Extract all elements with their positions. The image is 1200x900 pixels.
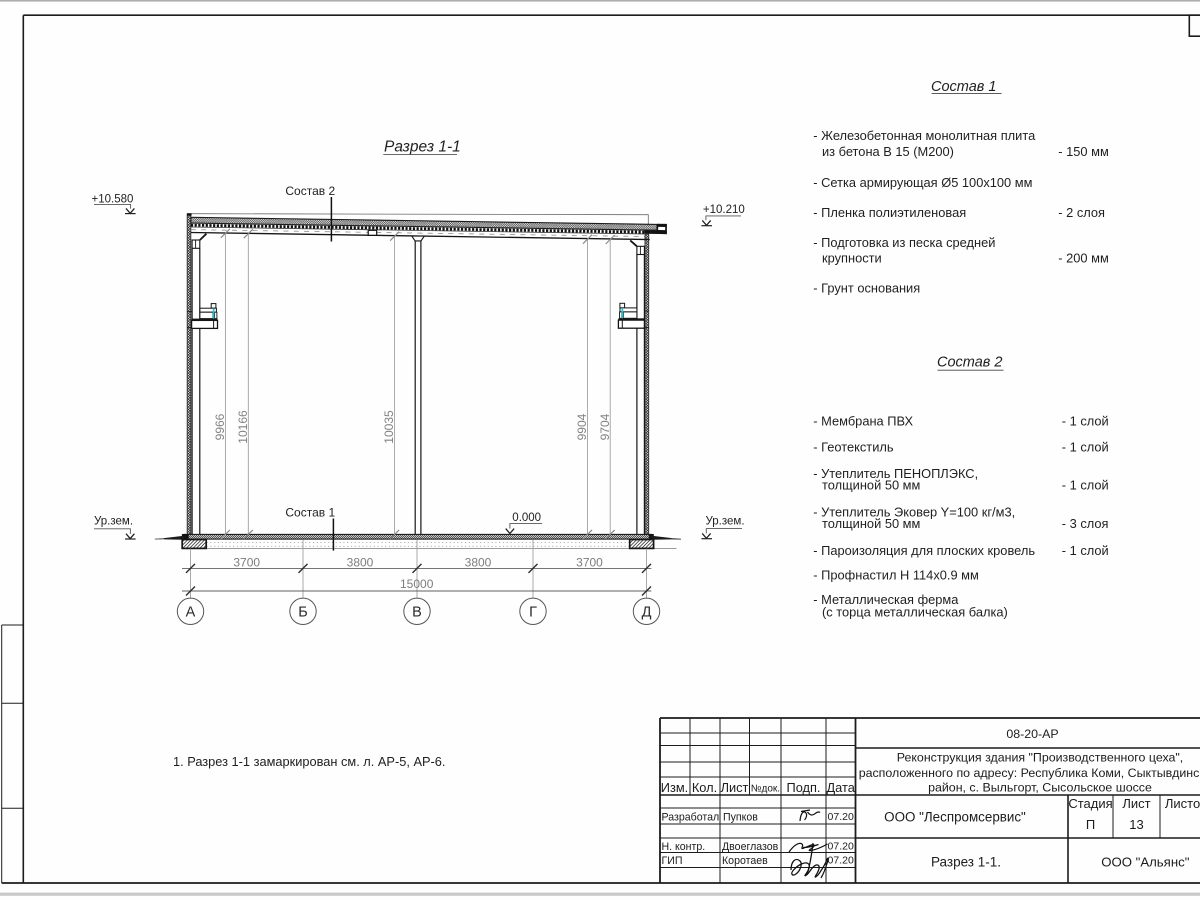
svg-text:- 1 слой: - 1 слой [1062,440,1109,455]
svg-text:3800: 3800 [347,555,374,569]
svg-text:- Подготовка из песка средней: - Подготовка из песка средней [813,235,995,250]
svg-text:Дата: Дата [827,780,856,795]
svg-text:Состав 2: Состав 2 [285,184,335,198]
svg-text:- Сетка армирующая Ø5 100х100: - Сетка армирующая Ø5 100х100 мм [813,175,1032,190]
svg-text:- 2 слоя: - 2 слоя [1058,205,1105,220]
svg-text:- Геотекстиль: - Геотекстиль [813,440,894,455]
svg-text:расположенного по адресу: Респ: расположенного по адресу: Республика Ком… [859,766,1200,780]
svg-text:- 150 мм: - 150 мм [1058,144,1109,159]
svg-text:10166: 10166 [236,410,250,444]
svg-text:- 1 слой: - 1 слой [1062,477,1109,492]
svg-text:9966: 9966 [213,413,227,440]
svg-text:+10.580: +10.580 [92,193,134,205]
svg-text:ООО "Альянс": ООО "Альянс" [1101,854,1189,869]
svg-text:П: П [1086,817,1095,832]
svg-text:ГИП: ГИП [662,855,683,867]
svg-text:Состав 1: Состав 1 [285,505,335,519]
svg-text:Разрез 1-1: Разрез 1-1 [384,139,461,156]
svg-text:- Пленка полиэтиленовая: - Пленка полиэтиленовая [813,205,966,220]
svg-text:Лист: Лист [1122,796,1150,811]
svg-text:Г: Г [529,604,537,620]
svg-text:Б: Б [298,604,308,620]
svg-text:А: А [186,604,196,620]
svg-text:(с торца металлическая балка): (с торца металлическая балка) [822,605,1008,620]
svg-text:Реконструкция здания "Производ: Реконструкция здания "Производственного … [897,751,1183,765]
svg-text:- Железобетонная монолитная п: - Железобетонная монолитная плита [813,128,1036,143]
svg-text:07.20: 07.20 [828,811,854,823]
svg-text:Состав 2: Состав 2 [937,355,1002,371]
svg-text:ООО "Леспромсервис": ООО "Леспромсервис" [884,810,1026,825]
svg-text:Лист: Лист [721,780,749,795]
svg-text:3700: 3700 [233,555,260,569]
svg-text:В: В [412,604,422,620]
svg-text:9704: 9704 [598,413,612,440]
svg-text:из бетона В 15 (М200): из бетона В 15 (М200) [822,144,954,159]
svg-text:1. Разрез 1-1 замаркирован см.: 1. Разрез 1-1 замаркирован см. л. АР-5, … [173,754,445,769]
svg-text:- Профнастил Н 114х0.9 мм: - Профнастил Н 114х0.9 мм [813,568,979,583]
svg-text:- Мембрана ПВХ: - Мембрана ПВХ [813,414,913,429]
svg-text:+10.210: +10.210 [703,204,745,216]
svg-text:Разрез 1-1.: Разрез 1-1. [931,854,1001,869]
svg-text:Коротаев: Коротаев [722,855,768,867]
svg-text:- 200 мм: - 200 мм [1058,251,1109,266]
svg-text:9904: 9904 [575,413,589,440]
svg-text:0.000: 0.000 [512,512,541,524]
svg-text:Ур.зем.: Ур.зем. [706,516,745,528]
svg-text:толщиной 50 мм: толщиной 50 мм [822,477,920,492]
svg-text:- 3 слоя: - 3 слоя [1062,516,1109,531]
svg-text:13: 13 [1129,817,1143,832]
svg-text:крупности: крупности [822,251,882,266]
svg-text:3800: 3800 [465,555,492,569]
svg-text:Состав 1: Состав 1 [931,79,996,95]
svg-text:Д: Д [642,604,652,620]
svg-text:район, с. Выльгорт, Сысольское: район, с. Выльгорт, Сысольское шоссе [928,781,1152,795]
svg-text:Н. контр.: Н. контр. [662,841,706,853]
svg-text:Изм.: Изм. [661,780,688,795]
svg-text:07.20: 07.20 [828,855,854,867]
svg-text:10035: 10035 [382,410,396,444]
svg-text:Двоеглазов: Двоеглазов [722,841,779,853]
svg-text:- Пароизоляция для плоских кро: - Пароизоляция для плоских кровель [813,543,1035,558]
svg-text:Кол.: Кол. [692,780,717,795]
svg-text:07.20: 07.20 [828,841,854,853]
svg-text:15000: 15000 [400,577,434,591]
svg-text:Ур.зем.: Ур.зем. [94,516,133,528]
svg-text:№док.: №док. [751,784,780,795]
svg-text:- 1 слой: - 1 слой [1062,414,1109,429]
svg-text:Стадия: Стадия [1068,796,1112,811]
svg-text:Листов: Листов [1165,796,1200,811]
svg-text:Разработал: Разработал [662,811,720,823]
svg-text:Пупков: Пупков [723,811,758,823]
svg-text:толщиной 50 мм: толщиной 50 мм [822,516,920,531]
svg-text:3700: 3700 [576,555,603,569]
svg-text:- 1 слой: - 1 слой [1062,543,1109,558]
svg-text:08-20-АР: 08-20-АР [1006,727,1058,741]
svg-text:Подп.: Подп. [787,780,821,795]
svg-text:- Грунт основания: - Грунт основания [813,281,920,296]
